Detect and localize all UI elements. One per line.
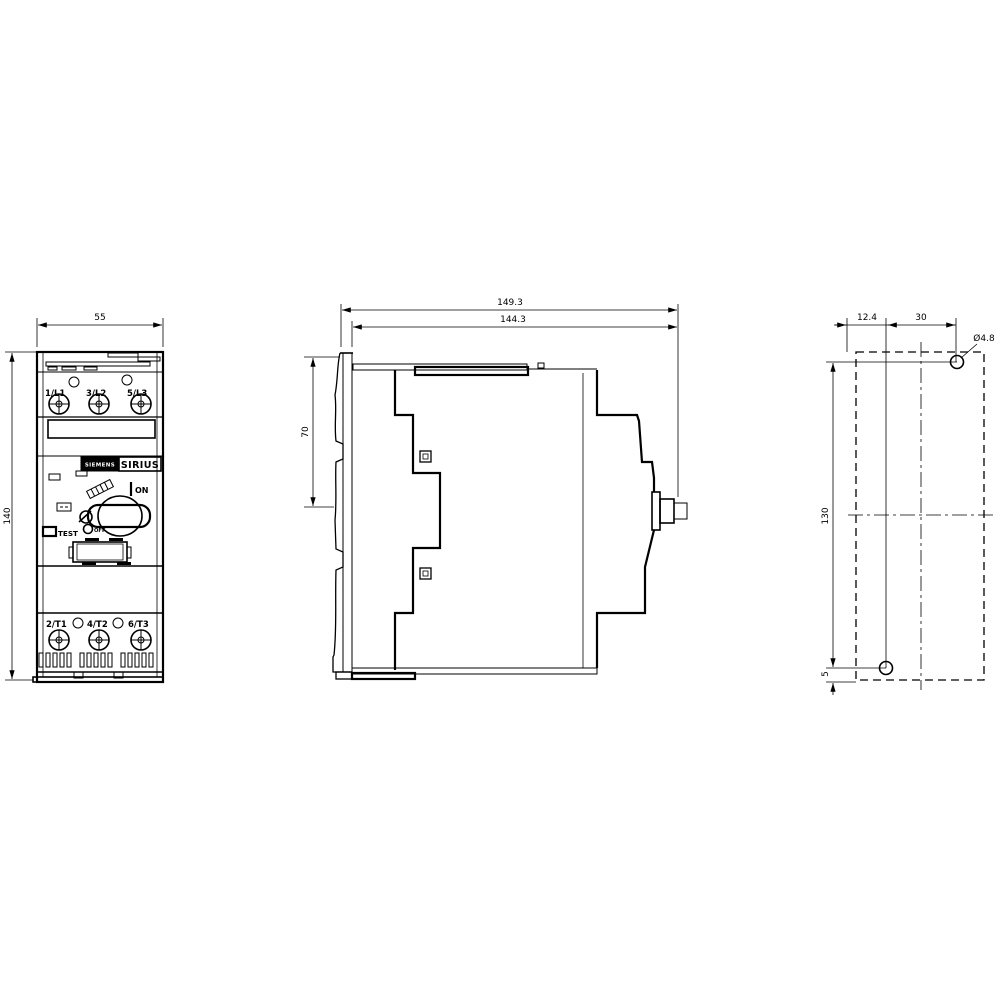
plate-foot: [336, 672, 352, 679]
front-base-plate: [33, 677, 163, 682]
front-width-dimension: 55: [37, 313, 163, 347]
bottom-offset-dimension: 5: [821, 671, 833, 695]
screw-terminal: [49, 630, 69, 650]
side-body-profile: [352, 363, 687, 679]
aux-port-bottom-left: [73, 618, 83, 628]
screw-terminal: [89, 394, 109, 414]
din-mounting-plate: [333, 353, 353, 679]
front-bottom-terminal-block: 2/T1 4/T2 6/T3: [33, 613, 163, 682]
side-body-depth-label: 144.3: [500, 315, 526, 325]
front-height-dimension: 140: [3, 352, 36, 680]
test-label: TEST: [58, 529, 78, 538]
screw-terminal: [131, 630, 151, 650]
side-view: 149.3 144.3 70: [301, 298, 687, 679]
side-total-depth-label: 149.3: [497, 298, 523, 308]
indicator-window-right: [76, 471, 87, 476]
front-width-label: 55: [94, 313, 105, 323]
side-total-depth-dimension: 149.3: [341, 298, 678, 497]
terminal-label-2T1: 2/T1: [46, 620, 67, 630]
off-position-mark: [84, 525, 93, 534]
nameplate-window: [73, 542, 127, 562]
test-button[interactable]: [43, 527, 56, 536]
drawing-svg: 55 140 1/L1 3/L2 5/L3: [0, 0, 1000, 1000]
din-clip-upper: [420, 451, 431, 462]
bottom-offset-label: 5: [821, 671, 831, 677]
screw-terminal: [49, 394, 69, 414]
front-top-terminal-block: 1/L1 3/L2 5/L3: [37, 375, 163, 456]
brand-strip: SIEMENS SIRIUS: [81, 457, 161, 471]
screw-terminal: [89, 630, 109, 650]
vent-slot-row: [39, 653, 153, 667]
dimensional-drawing: 55 140 1/L1 3/L2 5/L3: [0, 0, 1000, 1000]
front-view: 55 140 1/L1 3/L2 5/L3: [3, 313, 163, 682]
hole-offset-x-label: 12.4: [857, 313, 877, 323]
rotary-knob-shaft: [652, 492, 687, 530]
indicator-window-left: [49, 474, 60, 480]
brand-siemens-label: SIEMENS: [85, 463, 115, 469]
front-height-label: 140: [3, 507, 13, 524]
off-label: OFF: [94, 528, 106, 534]
hole-y-dimension: 130: [821, 363, 833, 667]
front-top-vents: [37, 353, 163, 372]
front-recessed-window: [48, 420, 155, 438]
on-label: ON: [135, 486, 149, 495]
terminal-label-6T3: 6/T3: [128, 620, 149, 630]
drilling-plan-view: 12.4 30 Ø4.8 130 5: [821, 313, 995, 695]
brand-sirius-label: SIRIUS: [121, 460, 159, 471]
screw-terminal: [131, 394, 151, 414]
terminal-label-4T2: 4/T2: [87, 620, 108, 630]
side-body-depth-dimension: 144.3: [352, 315, 677, 347]
hole-diameter-callout: Ø4.8: [961, 333, 995, 358]
din-clip-lower: [420, 568, 431, 579]
hole-spacing-x-label: 30: [915, 313, 927, 323]
side-upper-depth-label: 70: [301, 426, 311, 438]
side-upper-depth-dimension: 70: [301, 357, 340, 507]
aux-port-right: [122, 375, 132, 385]
device-footprint-dashed: [856, 352, 984, 680]
aux-port-left: [69, 377, 79, 387]
hole-x-dimensions: 12.4 30: [834, 313, 956, 325]
hole-spacing-y-label: 130: [821, 507, 831, 524]
front-control-section: ON OFF TEST: [37, 471, 163, 566]
aux-port-bottom-right: [113, 618, 123, 628]
hole-diameter-label: Ø4.8: [973, 333, 995, 344]
rating-hatch-label: [87, 480, 114, 499]
setting-dial: [57, 503, 71, 511]
